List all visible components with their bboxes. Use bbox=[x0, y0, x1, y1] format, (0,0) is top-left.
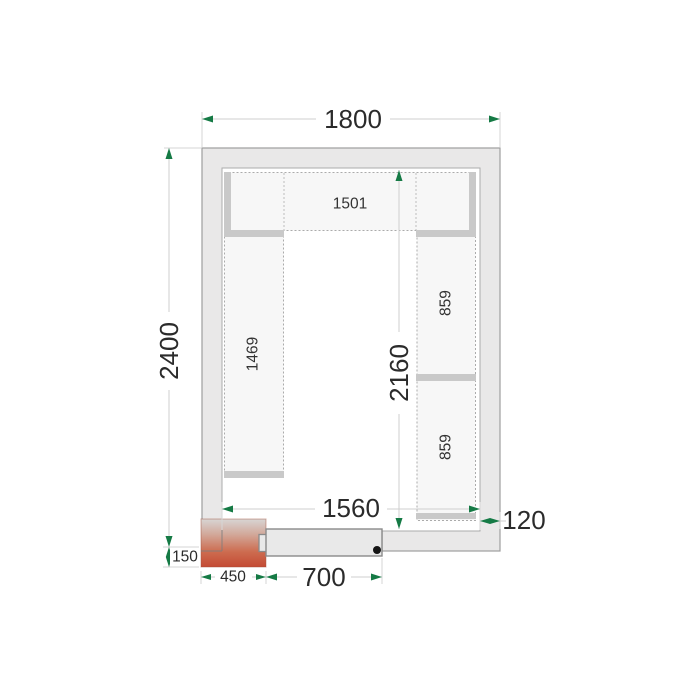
shelf-top-label: 1501 bbox=[333, 196, 367, 213]
dim-door-width-label: 700 bbox=[302, 562, 345, 592]
dim-outer-height: 2400 bbox=[154, 148, 201, 547]
shelf-bar-top-left-vertical bbox=[224, 172, 231, 230]
door-hinge-dot bbox=[373, 546, 381, 554]
shelf-bar-right-bottom bbox=[416, 513, 476, 519]
shelf-bar-left-top bbox=[224, 230, 284, 237]
shelf-right-upper-label: 859 bbox=[438, 290, 455, 316]
shelf-left-label: 1469 bbox=[245, 337, 262, 371]
condensing-unit bbox=[201, 519, 266, 567]
dim-unit-depth-label: 150 bbox=[172, 549, 198, 566]
dim-unit-depth: 150 bbox=[163, 547, 200, 567]
shelf-bar-left-bottom bbox=[224, 471, 284, 478]
door bbox=[259, 529, 382, 556]
condensing-unit-body bbox=[201, 519, 266, 567]
dim-inner-width-label: 1560 bbox=[322, 493, 380, 523]
dim-inner-height-label: 2160 bbox=[384, 344, 414, 402]
dim-door-width: 700 bbox=[266, 558, 382, 592]
dim-outer-width: 1800 bbox=[202, 104, 500, 147]
dim-unit-width: 450 bbox=[201, 568, 266, 586]
shelf-bar-top-right-vertical bbox=[469, 172, 476, 230]
shelf-right-lower-label: 859 bbox=[438, 434, 455, 460]
dim-wall-thickness-label: 120 bbox=[502, 505, 545, 535]
floor-plan: 1501 1469 859 859 1800 2400 2160 bbox=[0, 0, 700, 700]
dim-outer-width-label: 1800 bbox=[324, 104, 382, 134]
shelf-bar-right-divider bbox=[416, 374, 476, 381]
shelving: 1501 1469 859 859 bbox=[224, 172, 476, 521]
shelf-bar-right-top bbox=[416, 230, 476, 237]
dim-unit-width-label: 450 bbox=[220, 569, 246, 586]
dim-outer-height-label: 2400 bbox=[154, 322, 184, 380]
door-panel bbox=[266, 529, 382, 556]
floor-plan-canvas: 1501 1469 859 859 1800 2400 2160 bbox=[0, 0, 700, 700]
